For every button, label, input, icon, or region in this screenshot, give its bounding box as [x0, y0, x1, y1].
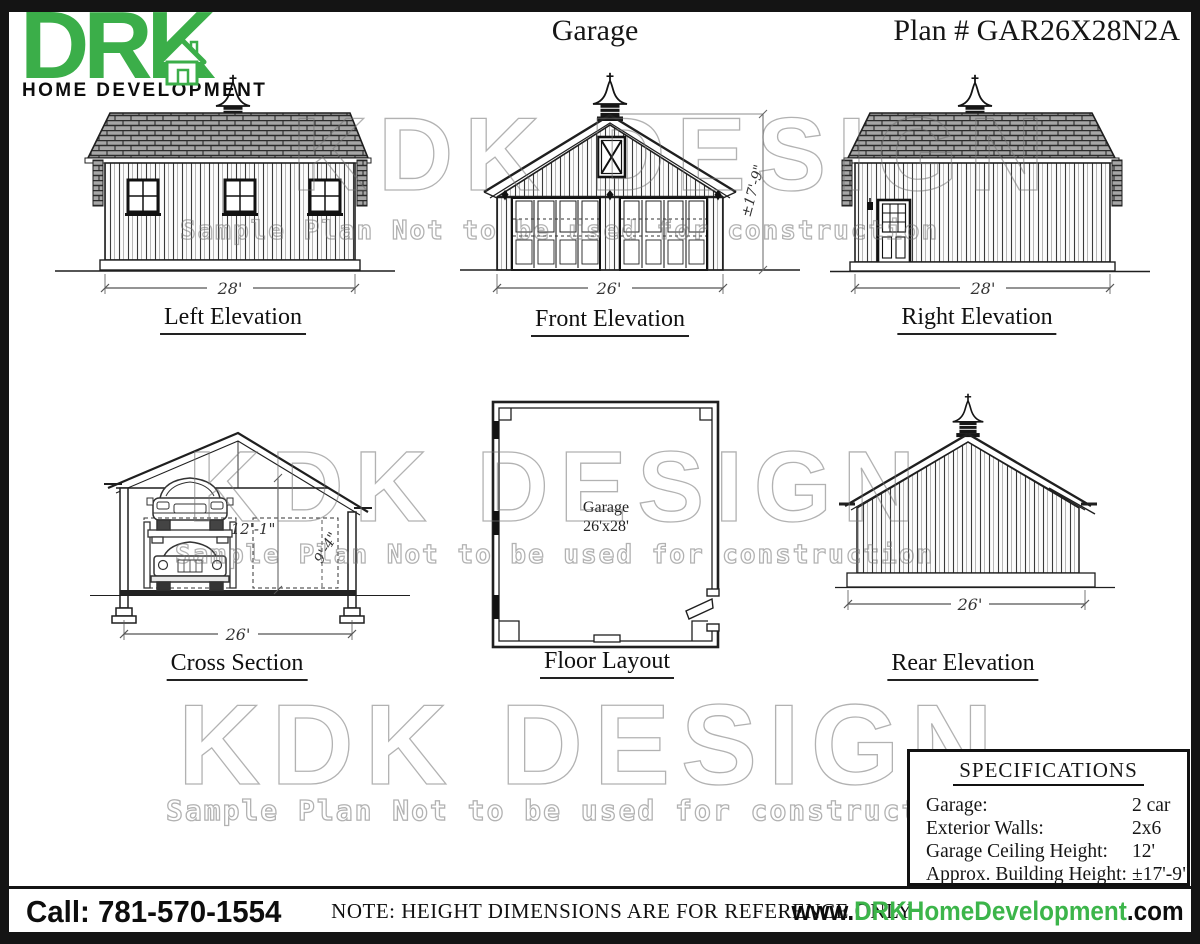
window-icon	[222, 180, 258, 215]
cross-section-drawing: 12'-1" 9'-4" 26'	[90, 420, 410, 670]
floor-slab	[120, 590, 356, 595]
drawing-title-cross-section: Cross Section	[167, 650, 308, 681]
foundation-band	[850, 262, 1115, 271]
gable-wall	[857, 442, 1079, 573]
ceiling-dimension-label: 12'-1"	[231, 520, 276, 538]
foundation-band	[100, 260, 360, 270]
spec-label: Garage:	[926, 794, 1132, 817]
front-elevation-drawing: 26' ±17'-9"	[460, 70, 800, 300]
right-elevation-drawing: 28'	[830, 70, 1150, 300]
room-name: Garage	[583, 499, 629, 516]
website-suffix: .com	[1127, 896, 1184, 926]
window-icon	[125, 180, 161, 215]
page-border-bottom	[0, 932, 1200, 944]
table-row: Garage Ceiling Height: 12'	[926, 840, 1181, 863]
drawing-title-floor-layout: Floor Layout	[540, 648, 674, 679]
page-border-left	[0, 0, 9, 944]
dimension-label: 28'	[970, 279, 996, 298]
roof-truss	[104, 433, 372, 515]
dimension-label: 26'	[225, 625, 251, 644]
drawing-title-rear-elevation: Rear Elevation	[887, 650, 1038, 681]
page-border-right	[1191, 0, 1200, 944]
table-row: Exterior Walls: 2x6	[926, 817, 1181, 840]
website-brand: DRKHomeDevelopment	[855, 896, 1128, 926]
specifications-title: SPECIFICATIONS	[953, 758, 1144, 786]
spec-label: Exterior Walls:	[926, 817, 1132, 840]
lift-dimension-label: 9'-4"	[311, 530, 341, 566]
left-elevation-drawing: 28'	[55, 70, 395, 300]
spec-value: ±17'-9"	[1132, 863, 1190, 886]
car-icon	[151, 542, 229, 590]
entry-door-icon	[878, 200, 910, 263]
table-row: Garage: 2 car	[926, 794, 1181, 817]
page-title: Garage	[552, 14, 639, 48]
window-icon	[307, 180, 343, 215]
rear-elevation-drawing: 26'	[835, 390, 1115, 625]
drawing-title-left-elevation: Left Elevation	[160, 304, 306, 335]
specifications-table: SPECIFICATIONS Garage: 2 car Exterior Wa…	[907, 749, 1190, 886]
company-logo: DRK HOME DEVELOPMENT	[20, 12, 320, 104]
watermark-kdk: KDK DESIGN	[178, 680, 1004, 811]
logo-subtitle: HOME DEVELOPMENT	[22, 80, 267, 102]
room-size: 26'x28'	[583, 518, 629, 535]
footer: Call: 781-570-1554 NOTE: HEIGHT DIMENSIO…	[0, 886, 1200, 932]
watermark-sample: Sample Plan Not to be used for construct…	[166, 794, 977, 827]
spec-label: Garage Ceiling Height:	[926, 840, 1132, 863]
drawing-title-front-elevation: Front Elevation	[531, 306, 689, 337]
spec-label: Approx. Building Height:	[926, 863, 1132, 886]
website-prefix: www.	[792, 896, 855, 926]
page-border-top	[0, 0, 1200, 12]
floor-layout-drawing: Garage 26'x28'	[480, 395, 740, 655]
roof	[85, 113, 371, 163]
garage-door-icon	[512, 198, 600, 270]
spec-value: 2 car	[1132, 794, 1181, 817]
loft-window-icon	[598, 137, 625, 177]
website-url: www.DRKHomeDevelopment.com	[792, 896, 1184, 927]
plan-number: Plan # GAR26X28N2A	[893, 14, 1180, 48]
dimension-label: 26'	[957, 595, 983, 614]
table-row: Approx. Building Height: ±17'-9"	[926, 863, 1181, 886]
roof	[844, 113, 1119, 163]
dimension-label: 26'	[596, 279, 622, 298]
drawing-title-right-elevation: Right Elevation	[897, 304, 1056, 335]
spec-value: 2x6	[1132, 817, 1181, 840]
dimension-label: 28'	[217, 279, 243, 298]
garage-door-icon	[620, 198, 707, 270]
foundation-band	[847, 573, 1095, 587]
cupola-icon	[953, 394, 984, 437]
phone-number: Call: 781-570-1554	[26, 894, 281, 930]
plan-sheet: DRK HOME DEVELOPMENT Garage Plan # GAR26…	[0, 0, 1200, 944]
spec-value: 12'	[1132, 840, 1181, 863]
car-icon	[147, 478, 233, 530]
house-icon	[156, 34, 208, 86]
